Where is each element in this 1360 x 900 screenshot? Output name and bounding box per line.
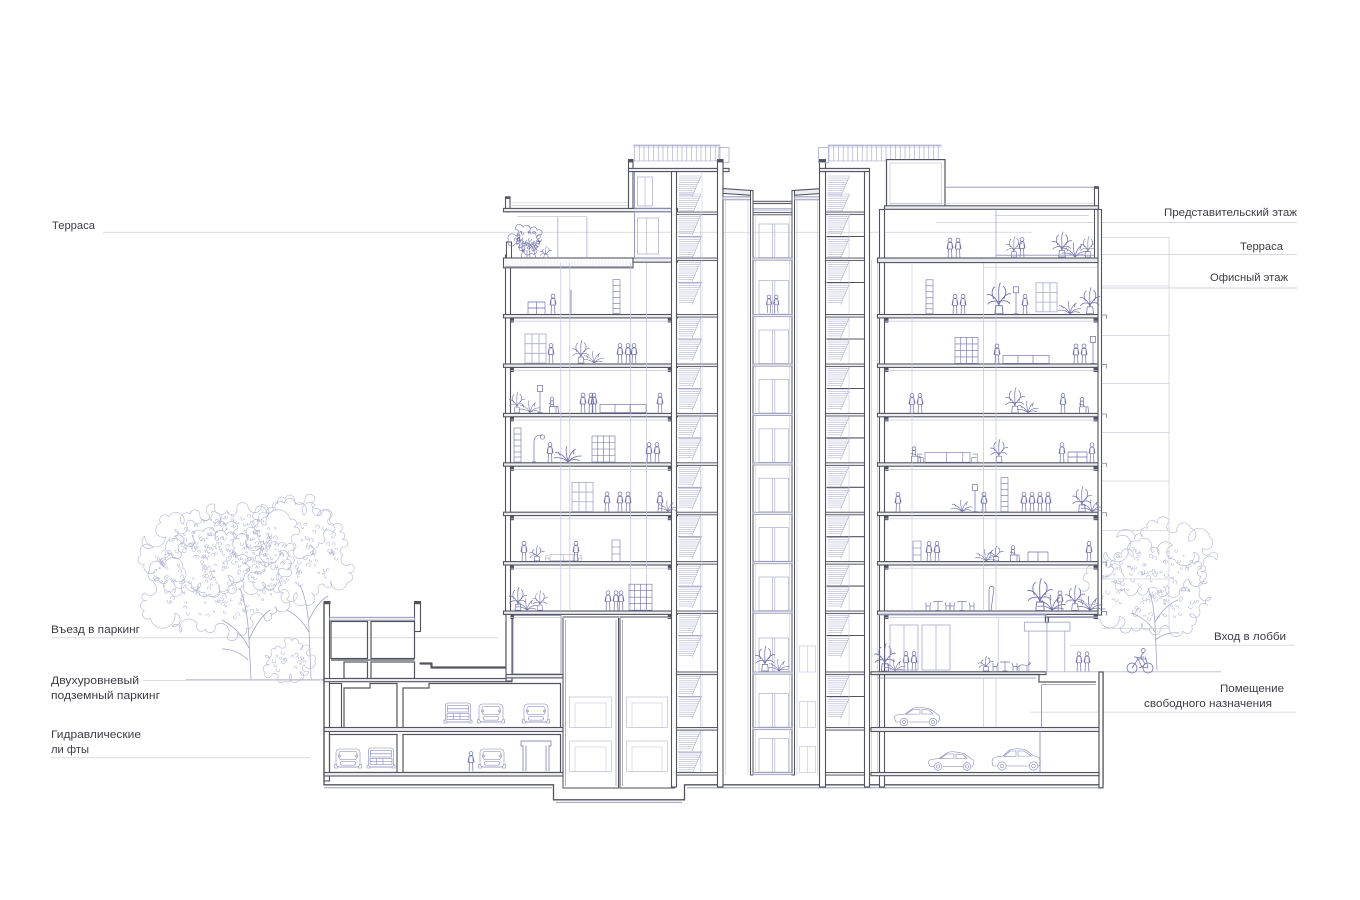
svg-text:свободного назначения: свободного назначения	[1144, 698, 1272, 710]
svg-text:Гидравлические: Гидравлические	[51, 729, 141, 741]
svg-text:Помещение: Помещение	[1220, 683, 1284, 695]
svg-text:Терраса: Терраса	[52, 220, 96, 232]
svg-text:Двухуровневый: Двухуровневый	[51, 675, 139, 687]
svg-text:Офисный этаж: Офисный этаж	[1210, 272, 1288, 284]
svg-text:подземный паркинг: подземный паркинг	[51, 690, 160, 702]
svg-text:ли фты: ли фты	[51, 744, 89, 756]
svg-text:Въезд в паркинг: Въезд в паркинг	[51, 624, 140, 636]
svg-text:Представительский этаж: Представительский этаж	[1164, 207, 1297, 219]
svg-text:Вход в лобби: Вход в лобби	[1214, 631, 1286, 643]
svg-text:Терраса: Терраса	[1240, 241, 1284, 253]
